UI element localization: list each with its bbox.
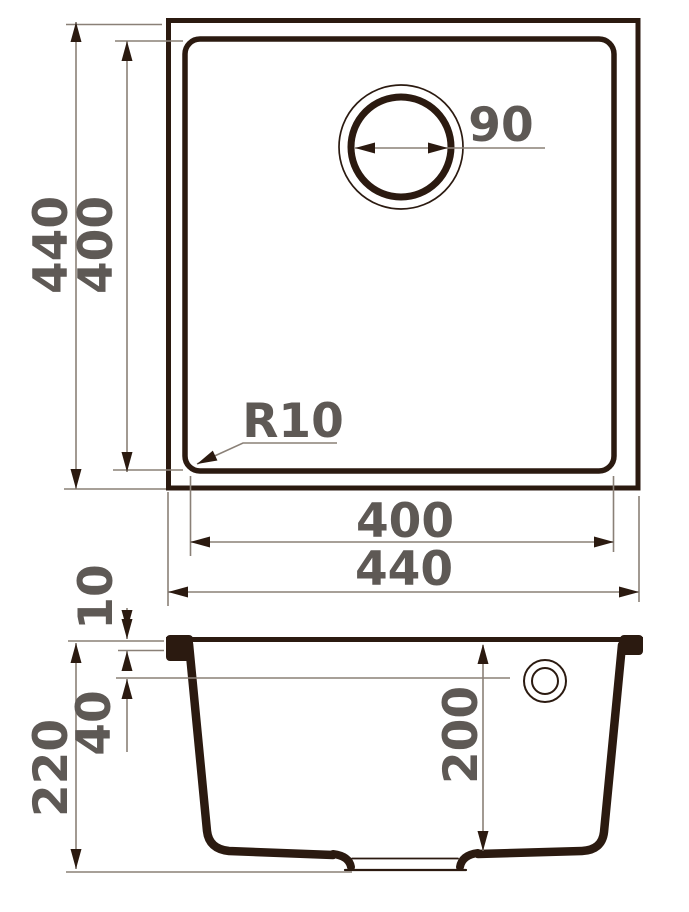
- dim-label-outer-width: 440: [355, 542, 453, 597]
- arrowhead: [478, 644, 489, 664]
- arrowhead: [428, 143, 448, 154]
- side-view-arrowheads: [71, 610, 489, 869]
- arrowhead: [122, 41, 133, 61]
- arrowhead: [122, 679, 133, 699]
- sink-technical-drawing-page: 440 400 90 R10 400 440: [0, 0, 689, 907]
- sink-dimension-drawing: 440 400 90 R10 400 440: [0, 0, 689, 907]
- drain-right-shoulder: [460, 853, 478, 867]
- dim-label-corner-radius: R10: [242, 394, 344, 449]
- sink-outer-edge-outline: [169, 21, 639, 489]
- dim-label-inner-height: 400: [69, 196, 124, 294]
- arrowhead: [71, 643, 82, 663]
- dim-label-inner-width: 400: [356, 494, 454, 549]
- top-view-arrowheads: [71, 22, 640, 598]
- arrowhead: [71, 469, 82, 489]
- dim-label-total-depth: 220: [24, 719, 79, 817]
- overflow-hole-inner-icon: [532, 668, 558, 694]
- side-view: 10 40 220 200: [24, 564, 643, 872]
- arrowhead: [478, 831, 489, 851]
- arrowhead: [122, 651, 133, 671]
- arrowhead: [619, 587, 639, 598]
- dim-label-rim-height: 10: [69, 564, 124, 629]
- arrowhead: [168, 587, 188, 598]
- side-view-labels: 10 40 220 200: [24, 564, 489, 817]
- bowl-left-wall: [189, 644, 333, 855]
- dim-label-bowl-depth: 200: [434, 686, 489, 784]
- arrowhead: [195, 451, 218, 469]
- drain-outer-circle: [339, 85, 463, 209]
- rim-right-lip: [620, 635, 643, 655]
- dim-label-drain-diameter: 90: [468, 98, 533, 153]
- overflow-hole-outer-icon: [524, 660, 566, 702]
- arrowhead: [355, 143, 375, 154]
- top-view: 440 400 90 R10 400 440: [24, 21, 639, 607]
- arrowhead: [122, 452, 133, 472]
- arrowhead: [71, 849, 82, 869]
- rim-left-lip: [166, 635, 193, 661]
- bowl-right-wall: [478, 645, 622, 854]
- drain-left-shoulder: [333, 854, 351, 867]
- arrowhead: [190, 537, 210, 548]
- arrowhead: [594, 537, 614, 548]
